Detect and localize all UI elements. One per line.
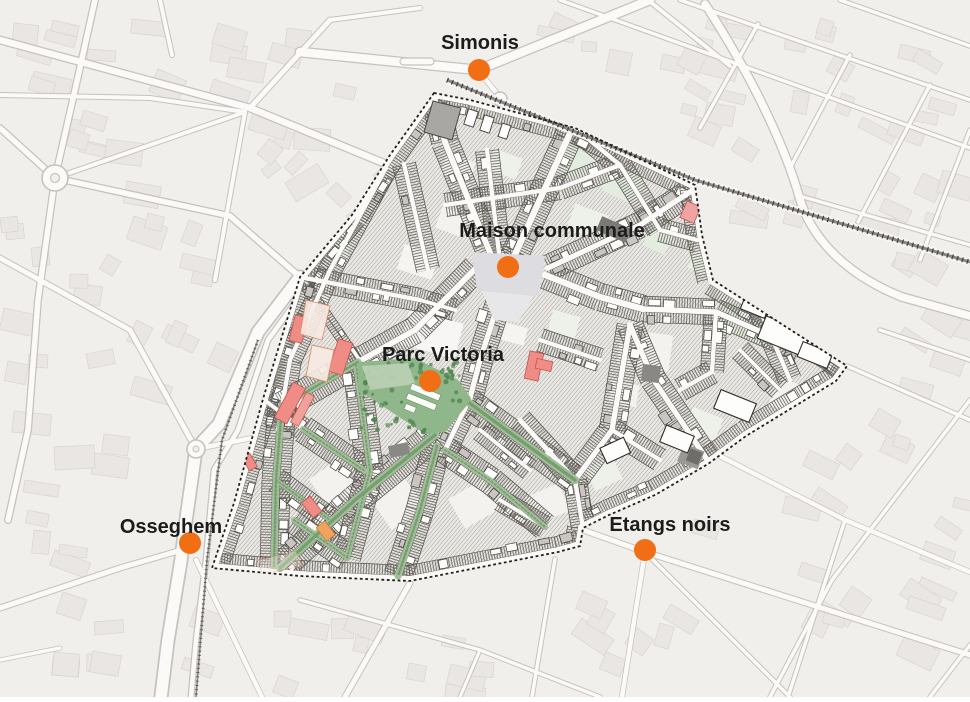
- svg-text:Simonis: Simonis: [441, 32, 519, 54]
- svg-text:Etangs noirs: Etangs noirs: [609, 514, 730, 536]
- svg-text:Maison communale: Maison communale: [459, 220, 645, 242]
- svg-text:Osseghem: Osseghem: [120, 516, 222, 538]
- svg-text:Parc Victoria: Parc Victoria: [382, 344, 505, 366]
